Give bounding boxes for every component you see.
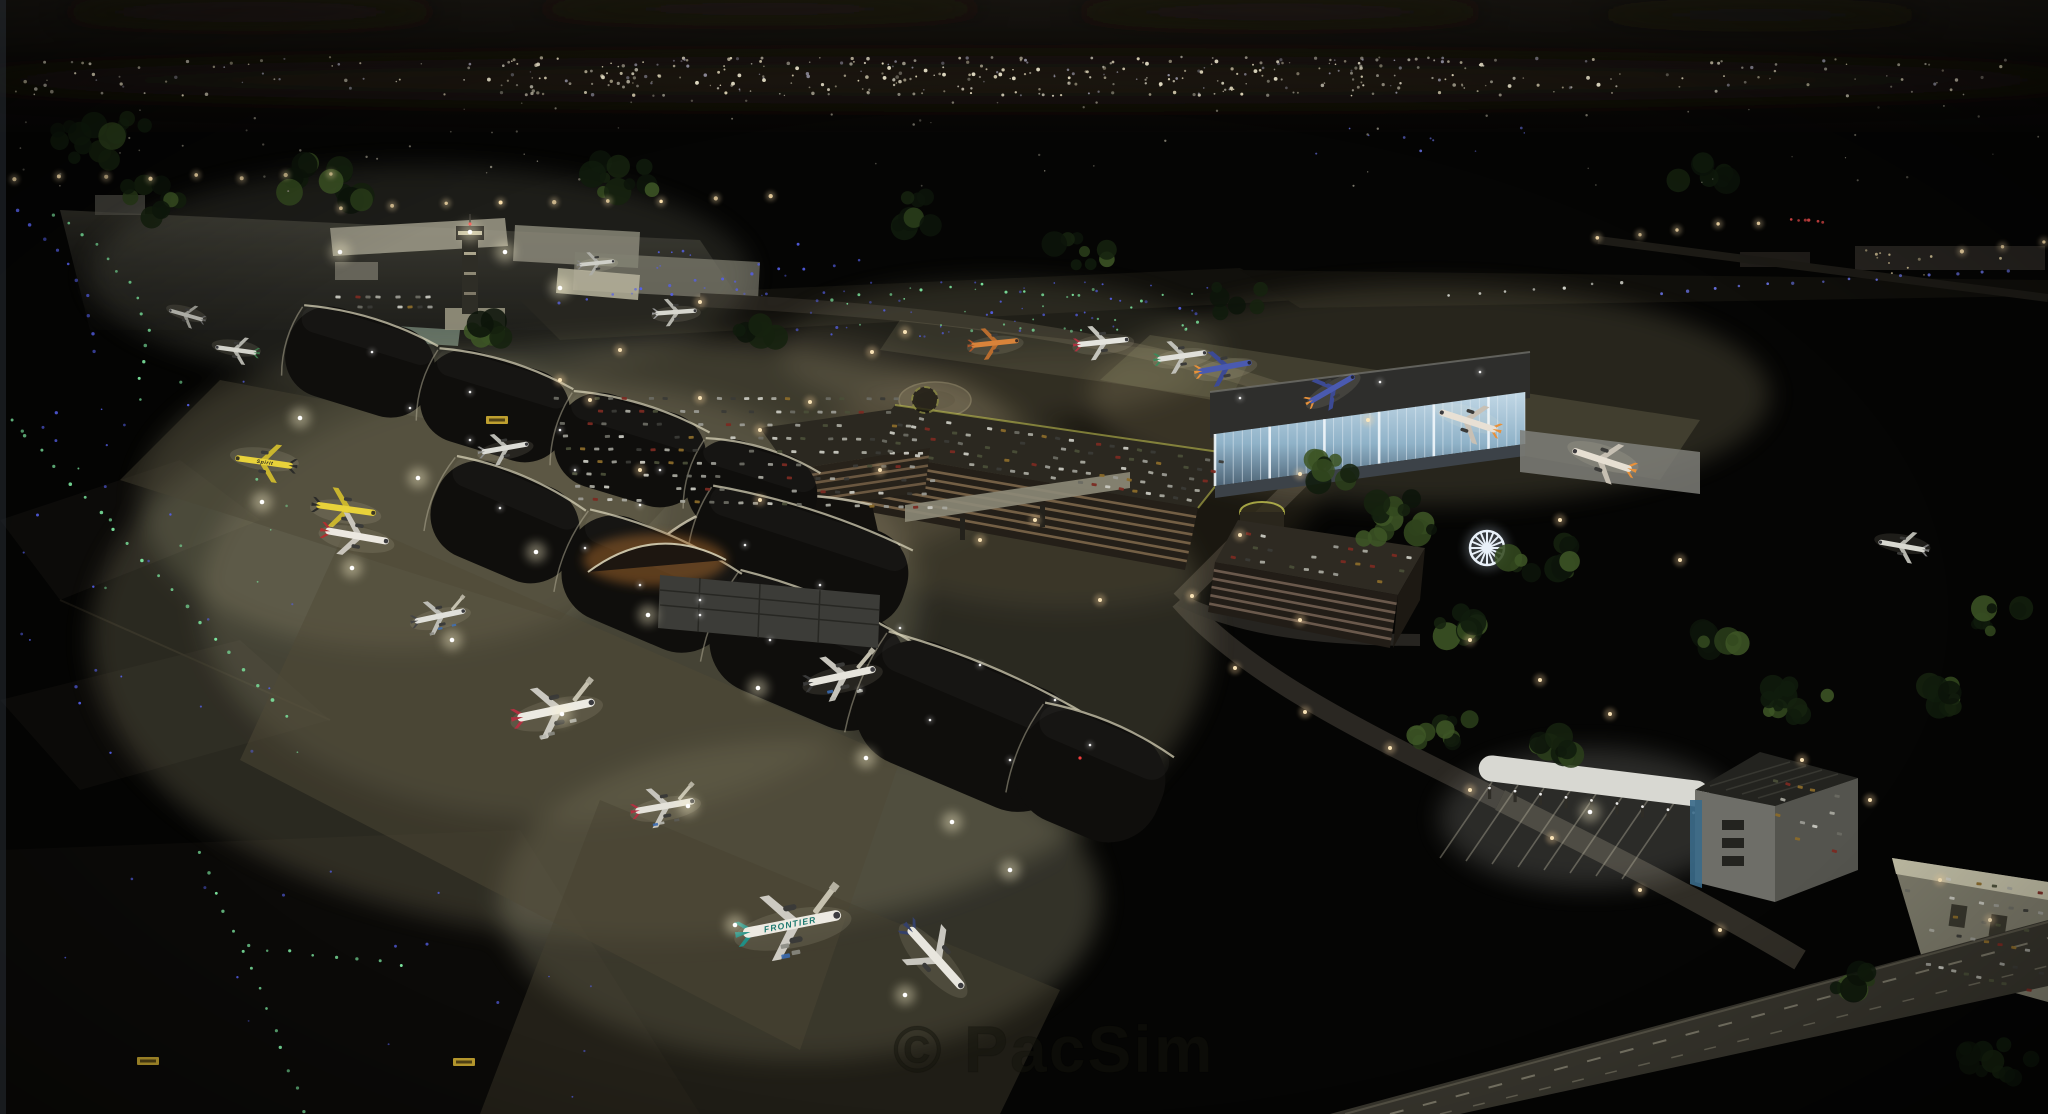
left-edge-strip: [0, 0, 6, 1114]
flight-sim-night-airport-screenshot: SpiritFRONTIER © PacSim: [0, 0, 2048, 1114]
scene-canvas: SpiritFRONTIER © PacSim: [0, 0, 2048, 1114]
watermark-text: © PacSim: [893, 1012, 1214, 1086]
vignette: [0, 0, 2048, 1114]
